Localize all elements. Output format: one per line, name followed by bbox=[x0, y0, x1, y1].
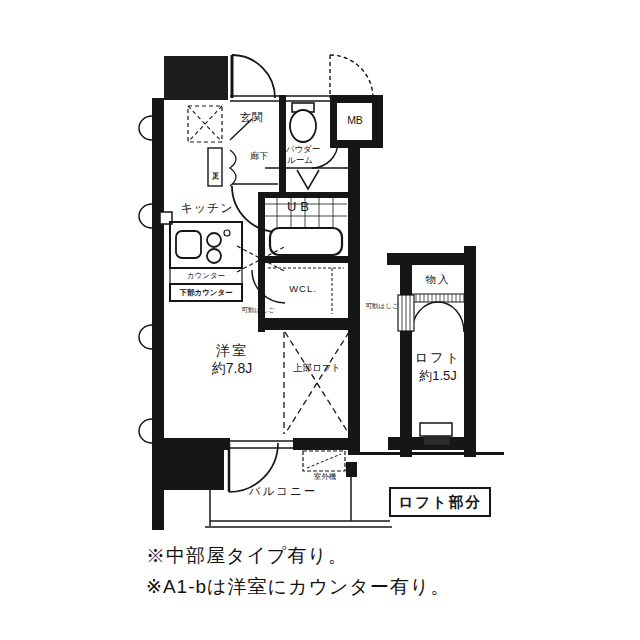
wall-left-outer bbox=[152, 98, 164, 530]
room-label-wcl: WCL. bbox=[289, 284, 317, 294]
storage-shelf-hatch bbox=[412, 294, 464, 302]
pillar-bottom-left bbox=[164, 438, 224, 490]
stove-knob bbox=[224, 230, 230, 236]
label-counter: カウンター bbox=[187, 272, 225, 280]
room-label-balcony: バルコニー bbox=[249, 485, 318, 498]
note-line-2: ※A1-bは洋室にカウンター有り。 bbox=[146, 574, 450, 600]
room-label-ub: UB bbox=[287, 200, 313, 214]
label-ladder-loft: 可動はしご bbox=[366, 302, 399, 309]
storage-door-arc bbox=[412, 302, 438, 332]
room-label-rouka: 廊下 bbox=[250, 152, 268, 162]
loft-section-base-line bbox=[356, 452, 504, 455]
window-bump-icon bbox=[139, 419, 152, 443]
room-label-western-1: 洋室 bbox=[216, 343, 248, 358]
room-label-kitchen: キッチン bbox=[180, 202, 233, 215]
room-label-storage: 物入 bbox=[426, 274, 451, 286]
upper-loft-dashed-area bbox=[284, 332, 349, 434]
label-ladder-main: 可動はしご bbox=[242, 306, 275, 313]
note-line-1: ※中部屋タイプ有り。 bbox=[146, 543, 348, 569]
room-label-loft-1: ロフト bbox=[415, 351, 461, 365]
stove-burner bbox=[207, 249, 221, 263]
bathtub bbox=[270, 228, 342, 255]
room-label-mb: MB bbox=[347, 115, 363, 127]
entrance-door-swing-dashed-arc bbox=[330, 55, 373, 98]
room-label-genkan: 玄関 bbox=[240, 111, 264, 123]
room-label-loft-2: 約1.5J bbox=[419, 369, 457, 383]
stove-burner bbox=[207, 233, 221, 247]
label-lower-counter: 下部カウンター bbox=[179, 289, 232, 297]
window-bump-icon bbox=[139, 325, 152, 349]
ub-fold-door bbox=[297, 170, 319, 189]
room-label-powder-1: パウダー bbox=[286, 145, 321, 154]
label-outdoor-unit: 室外機 bbox=[314, 473, 337, 481]
fence-post-balcony bbox=[346, 462, 357, 477]
loft-section-caption-text: ロフト部分 bbox=[398, 493, 482, 512]
toilet-bowl bbox=[290, 110, 316, 142]
shoe-box-fold-door bbox=[230, 150, 236, 186]
wall-ub-wcl-divider bbox=[262, 256, 348, 263]
wcl-door-arc bbox=[252, 270, 285, 303]
label-upper-loft: 上部ロフト bbox=[293, 363, 341, 373]
kitchen-counter-top bbox=[170, 222, 242, 268]
loft-section-caption: ロフト部分 bbox=[389, 487, 491, 517]
wall-bottom-right bbox=[293, 438, 355, 450]
kitchen-sink bbox=[176, 231, 201, 258]
room-label-western-2: 約7.8J bbox=[212, 361, 252, 376]
window-bump-icon bbox=[139, 204, 152, 228]
outdoor-unit-box bbox=[303, 451, 345, 471]
room-label-powder-2: ルーム bbox=[287, 156, 313, 165]
shoe-box bbox=[208, 148, 222, 186]
window-bump-icon bbox=[139, 116, 152, 140]
loft-step-lower bbox=[424, 436, 450, 445]
ladder bbox=[398, 295, 414, 331]
loft-step bbox=[420, 423, 452, 436]
floor-plan-canvas: 玄関 MB 廊下 パウダー ルーム 下足入 キッチン カウンター 下部カウンター… bbox=[0, 0, 640, 640]
storage-door-arc bbox=[438, 302, 464, 332]
wall-right-outer bbox=[348, 140, 360, 455]
entrance-door-arc bbox=[232, 55, 275, 98]
shaft-top-left bbox=[164, 56, 228, 100]
wall-below-wcl bbox=[265, 318, 348, 330]
